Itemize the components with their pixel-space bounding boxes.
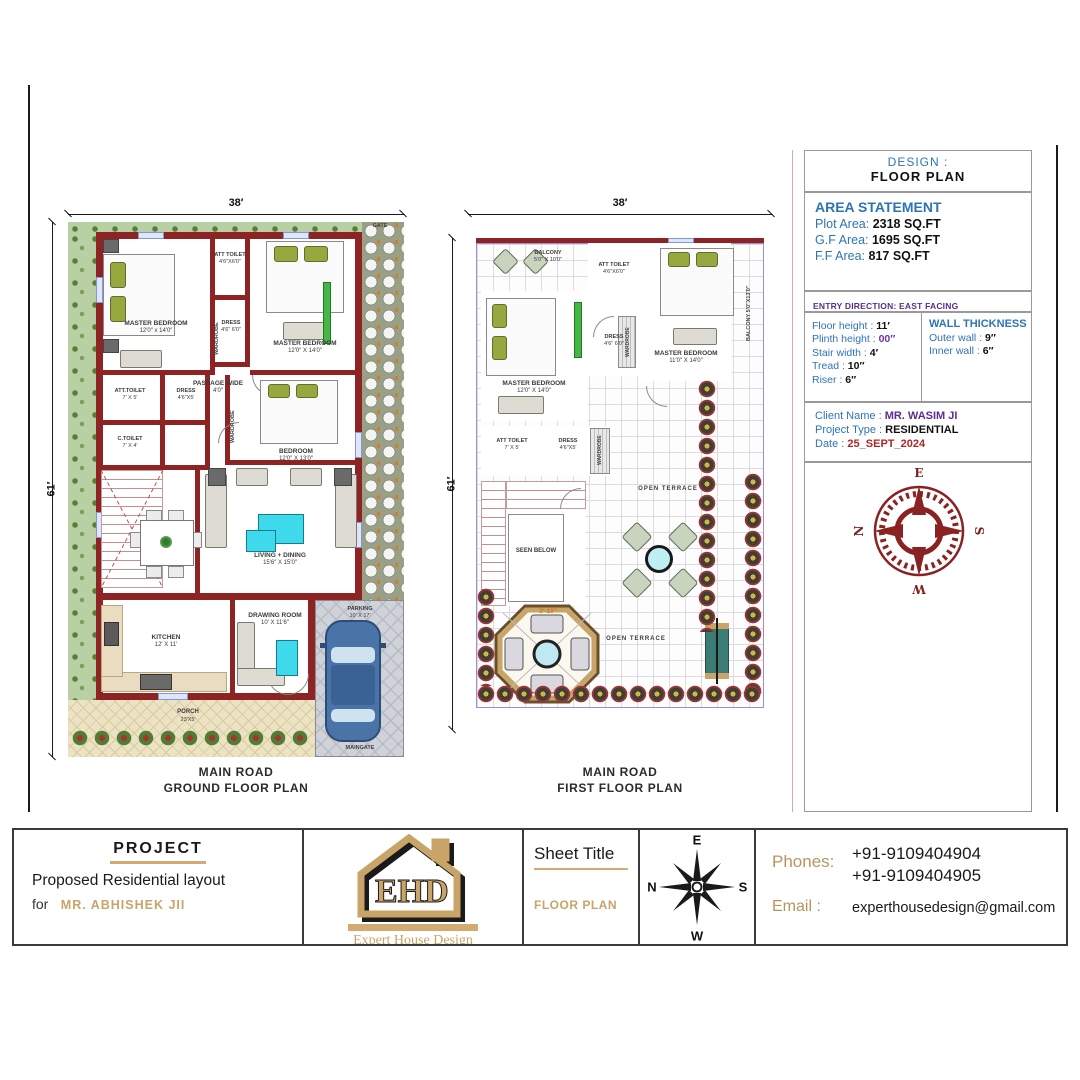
room-name: ATT TOILET <box>496 438 527 444</box>
rose-letter-bottom: W <box>912 582 925 596</box>
room-name: MASTER BEDROOM <box>273 340 336 347</box>
bed-pillow <box>274 246 298 262</box>
gf-wall-drawing-right <box>308 600 315 700</box>
gf-wall-int <box>245 232 250 367</box>
room-label-att-toilet-1: ATT TOILET 4′6″X6′0″ <box>598 262 629 276</box>
gf-hex-path-strip <box>362 222 404 600</box>
label-wardrobe: WARDROBE <box>230 405 236 449</box>
bed-pillow <box>492 336 507 360</box>
drawing-table <box>276 640 298 676</box>
spec-value: 11′ <box>876 320 890 332</box>
room-label-bedroom: BEDROOM 12′0″ X 13′0″ <box>279 448 313 464</box>
gf-wall-int <box>96 370 215 375</box>
room-label-parking: PARKING 10′ X 17′ <box>348 606 373 620</box>
bed-pillow <box>296 384 318 398</box>
bed-pillow <box>668 252 690 267</box>
gf-title-plan-name: GROUND FLOOR PLAN <box>164 780 309 796</box>
room-name: DRESS <box>222 320 241 326</box>
room-size: 12′0″ X 13′0″ <box>279 456 313 464</box>
area-value: 2318 SQ.FT <box>873 217 941 231</box>
spec-plinth-height: Plinth height : 00″ <box>812 333 895 345</box>
specs-box: Floor height : 11′ Plinth height : 00″ S… <box>804 312 1032 402</box>
logo-company-name: Expert House Design <box>353 933 473 944</box>
spec-floor-height: Floor height : 11′ <box>812 320 895 332</box>
bedside-table <box>103 339 119 353</box>
design-box: DESIGN : FLOOR PLAN <box>804 150 1032 192</box>
room-label-c-toilet: C.TOILET 7′ X 4′ <box>118 436 143 450</box>
room-name: SEEN BELOW <box>516 548 556 554</box>
compass-cell: E S W N <box>640 830 754 944</box>
project-heading: PROJECT <box>14 840 302 858</box>
room-size: 12′ X 11′ <box>152 642 181 650</box>
label-seen-below: SEEN BELOW <box>516 548 556 556</box>
room-size: 4′6″X6′0″ <box>598 269 629 276</box>
compass-letter-left: N <box>647 880 656 895</box>
client-value: 25_SEPT_2024 <box>847 438 925 450</box>
date-row: Date : 25_SEPT_2024 <box>815 438 1021 450</box>
email-label: Email : <box>772 898 821 916</box>
bed-pillow <box>110 262 126 288</box>
gf-wall-mid <box>96 593 362 600</box>
room-label-att-toilet-2: ATT TOILET 7′ X 5′ <box>496 438 527 452</box>
area-value: 1695 SQ.FT <box>872 233 940 247</box>
sliding-door-green <box>323 282 331 344</box>
spec-value: 00″ <box>879 333 896 345</box>
room-name: DRESS <box>177 388 196 394</box>
spec-label: Riser : <box>812 374 842 386</box>
room-size: 4′6″ 6′0″ <box>221 327 241 334</box>
coffee-table <box>246 530 276 552</box>
room-label-drawing-room: DRAWING ROOM 10′ X 11′6″ <box>248 612 301 628</box>
phone-number-2: +91-9109404905 <box>852 866 981 886</box>
room-name: PASSAGE WIDE <box>193 380 243 387</box>
contact-cell: Phones: +91-9109404904 +91-9109404905 Em… <box>756 830 1070 944</box>
sheet-border-right <box>1056 145 1058 812</box>
label-open-terrace-1: OPEN TERRACE <box>638 486 698 494</box>
area-label: F.F Area: <box>815 249 865 263</box>
window <box>138 232 164 239</box>
ff-dim-height-label: 61′ <box>445 477 457 492</box>
stair-dimension: 3′-10″ <box>539 608 557 615</box>
spec-outer-wall: Outer wall : 9″ <box>929 332 1027 344</box>
sheet-border-left <box>28 85 30 812</box>
room-name: BALCONY <box>534 250 561 256</box>
ff-title-plan-name: FIRST FLOOR PLAN <box>557 780 683 796</box>
spec-value: 4′ <box>870 347 878 359</box>
logo-monogram: EHD <box>375 873 449 910</box>
client-value: RESIDENTIAL <box>885 424 958 436</box>
room-name: ATT TOILET <box>598 262 629 268</box>
sofa <box>290 468 322 486</box>
room-name: ATT TOILET <box>214 252 245 258</box>
room-size: 12′0″ X 14′0″ <box>273 348 336 356</box>
room-name: PORCH <box>177 709 199 715</box>
room-label-master-bedroom-2: MASTER BEDROOM 11′0″ X 14′0″ <box>654 350 717 366</box>
client-label: Client Name : <box>815 410 882 422</box>
room-label-balcony-1: BALCONY 5′0″ X 10′0″ <box>534 250 562 264</box>
room-label-dress-1: DRESS 4′6″ 6′0″ <box>604 334 624 348</box>
room-label-att-toilet-2: ATT.TOILET 7′ X 5′ <box>115 388 146 402</box>
window <box>355 432 362 458</box>
bed-pillow <box>492 304 507 328</box>
room-size: 4′6″X5′ <box>177 395 196 402</box>
spec-label: Outer wall : <box>929 332 982 344</box>
label-wardrobe: WARDROBE <box>625 322 631 362</box>
ehd-logo: EHD <box>353 834 473 922</box>
bedside-table <box>103 239 119 253</box>
design-label: DESIGN : <box>805 155 1031 169</box>
rose-letter-right: S <box>972 527 986 536</box>
project-line2: for MR. ABHISHEK JII <box>32 896 302 914</box>
window <box>283 232 309 239</box>
room-name: ATT.TOILET <box>115 388 146 394</box>
ff-title-main-road: MAIN ROAD <box>557 764 683 780</box>
room-size: 7′ X 4′ <box>118 443 143 450</box>
planter-row <box>698 380 716 632</box>
room-size: 4′0″ <box>193 388 243 396</box>
specs-left-column: Floor height : 11′ Plinth height : 00″ S… <box>812 318 895 386</box>
room-size: 5′0″ X 10′0″ <box>534 257 562 264</box>
area-statement-title: AREA STATEMENT <box>815 199 1021 215</box>
design-value: FLOOR PLAN <box>805 169 1031 184</box>
gf-dim-width-label: 38′ <box>229 197 244 209</box>
client-label: Project Type : <box>815 424 882 436</box>
spec-tread: Tread : 10″ <box>812 360 895 372</box>
room-name: MASTER BEDROOM <box>124 320 187 327</box>
room-size: 15′6″ X 15′0″ <box>254 560 306 568</box>
room-size: 12′0″ x 14′0″ <box>124 328 187 336</box>
room-label-dress-1: DRESS 4′6″ 6′0″ <box>221 320 241 334</box>
sliding-door-green <box>574 302 582 358</box>
dining-chair <box>168 566 184 578</box>
gf-wall-int <box>215 362 250 367</box>
gf-wall-int <box>96 420 210 425</box>
label-wardrobe: WARDROBE <box>597 430 603 470</box>
label-gate: GATE <box>373 223 388 229</box>
room-name: OPEN TERRACE <box>638 486 698 492</box>
stair-void-box <box>508 514 564 602</box>
area-statement-box: AREA STATEMENT Plot Area: 2318 SQ.FT G.F… <box>804 192 1032 291</box>
room-label-master-bedroom-1: MASTER BEDROOM 12′0″ X 14′0″ <box>502 380 565 396</box>
room-name: PARKING <box>348 606 373 612</box>
spec-label: Stair width : <box>812 347 867 359</box>
title-block: PROJECT Proposed Residential layout for … <box>12 828 1068 946</box>
wall-thickness-title: WALL THICKNESS <box>929 318 1027 330</box>
compass-icon <box>657 847 737 927</box>
first-floor-plan: SEEN BELOW 3′-10″ <box>468 238 772 730</box>
spec-label: Inner wall : <box>929 345 980 357</box>
entry-direction-text: ENTRY DIRECTION: EAST FACING <box>813 301 958 311</box>
area-row-gf: G.F Area: 1695 SQ.FT <box>815 233 1021 247</box>
compass-letter-right: S <box>739 880 748 895</box>
room-label-balcony-2: BALCONY 5′0″X13′0″ <box>746 278 752 348</box>
window <box>96 277 103 303</box>
terrace-round-table <box>645 545 673 573</box>
room-label-master-bedroom-1: MASTER BEDROOM 12′0″ x 14′0″ <box>124 320 187 336</box>
ff-plan-title: MAIN ROAD FIRST FLOOR PLAN <box>557 764 683 796</box>
compass-rose-decorative <box>871 483 967 579</box>
phones-label: Phones: <box>772 852 834 872</box>
loveseat <box>673 328 717 345</box>
bed-pillow <box>268 384 290 398</box>
entry-direction-box: ENTRY DIRECTION: EAST FACING <box>804 291 1032 312</box>
spec-label: Floor height : <box>812 320 873 332</box>
bed-pillow <box>696 252 718 267</box>
spec-inner-wall: Inner wall : 6″ <box>929 345 1027 357</box>
loveseat <box>120 350 162 368</box>
room-name: MASTER BEDROOM <box>654 350 717 357</box>
drawing-sheet: 38′ 61′ <box>0 0 1080 1080</box>
room-size: 10′ X 17′ <box>348 613 373 620</box>
sofa <box>236 468 268 486</box>
sheet-title-value: FLOOR PLAN <box>534 898 638 912</box>
room-name: KITCHEN <box>152 634 181 641</box>
room-size: 4′6″X6′0″ <box>214 259 245 266</box>
logo-bar <box>348 924 478 931</box>
room-name: DRAWING ROOM <box>248 612 301 619</box>
room-name: DRESS <box>559 438 578 444</box>
rose-letter-left: N <box>852 526 866 537</box>
ff-dim-width-label: 38′ <box>613 197 628 209</box>
panel-divider-line <box>792 150 793 812</box>
stove <box>140 674 172 690</box>
project-for-text: for <box>32 896 48 912</box>
client-value: MR. WASIM JI <box>885 410 958 422</box>
room-name: OPEN TERRACE <box>606 636 666 642</box>
room-label-living-dining: LIVING + DINING 15′6″ X 15′0″ <box>254 552 306 568</box>
gf-garden-strip-top <box>68 222 362 232</box>
spec-riser: Riser : 6″ <box>812 374 895 386</box>
area-row-ff: F.F Area: 817 SQ.FT <box>815 249 1021 263</box>
room-name: C.TOILET <box>118 436 143 442</box>
spec-label: Plinth height : <box>812 333 876 345</box>
gf-wall-int <box>215 295 245 300</box>
room-label-passage: PASSAGE WIDE 4′0″ <box>193 380 243 396</box>
project-heading-underline <box>110 861 206 864</box>
planter-row <box>744 473 762 701</box>
gf-porch-flower-bed <box>70 728 313 752</box>
bed-pillow <box>304 246 328 262</box>
room-size: 10′ X 11′6″ <box>248 620 301 628</box>
specs-divider <box>921 313 922 403</box>
area-label: Plot Area: <box>815 217 869 231</box>
logo-cell: EHD Expert House Design <box>304 830 522 944</box>
gf-dim-line-top <box>68 214 404 215</box>
sheet-title-heading: Sheet Title <box>534 844 638 864</box>
table-plant <box>160 536 172 548</box>
area-row-plot: Plot Area: 2318 SQ.FT <box>815 217 1021 231</box>
bench-axis-line <box>716 618 718 684</box>
spec-value: 6″ <box>845 374 856 386</box>
sheet-title-underline <box>534 868 628 870</box>
compass-letter-top: E <box>693 833 702 848</box>
project-cell: PROJECT Proposed Residential layout for … <box>14 830 302 944</box>
room-size: 11′0″ X 14′0″ <box>654 358 717 366</box>
room-size: 7′ X 5′ <box>496 445 527 452</box>
room-size: 7′ X 5′ <box>115 395 146 402</box>
gf-garden-strip-left <box>68 232 96 700</box>
room-size: 4′6″ 6′0″ <box>604 341 624 348</box>
planter-row <box>477 588 495 686</box>
window <box>158 693 188 700</box>
room-label-att-toilet-1: ATT TOILET 4′6″X6′0″ <box>214 252 245 266</box>
area-label: G.F Area: <box>815 233 869 247</box>
label-maingate: MAINGATE <box>346 745 375 751</box>
room-label-master-bedroom-2: MASTER BEDROOM 12′0″ X 14′0″ <box>273 340 336 356</box>
planter-row <box>477 685 762 703</box>
gf-plan-title: MAIN ROAD GROUND FLOOR PLAN <box>164 764 309 796</box>
client-name-row: Client Name : MR. WASIM JI <box>815 410 1021 422</box>
label-open-terrace-2: OPEN TERRACE <box>606 636 666 644</box>
compass-rose-box: E S W N <box>804 462 1032 812</box>
gf-wall-top <box>96 232 362 239</box>
room-size: 23′X5′ <box>177 717 199 724</box>
ff-dim-line-top <box>468 214 772 215</box>
kitchen-sink <box>104 622 119 646</box>
room-name: LIVING + DINING <box>254 552 306 559</box>
label-wardrobe: WARDROBE <box>214 317 220 361</box>
room-label-dress-2: DRESS 4′6″X5′ <box>559 438 578 452</box>
ground-floor-plan: MASTER BEDROOM 12′0″ x 14′0″ ATT TOILET … <box>68 222 404 757</box>
room-size: 4′6″X5′ <box>559 445 578 452</box>
gf-dim-height-label: 61′ <box>45 482 57 497</box>
spec-label: Tread : <box>812 360 845 372</box>
room-name: MASTER BEDROOM <box>502 380 565 387</box>
project-line1: Proposed Residential layout <box>32 872 302 890</box>
room-name: DRESS <box>605 334 624 340</box>
rose-letter-top: E <box>914 466 923 480</box>
room-label-kitchen: KITCHEN 12′ X 11′ <box>152 634 181 650</box>
loveseat <box>498 396 544 414</box>
area-value: 817 SQ.FT <box>869 249 930 263</box>
corner-table <box>208 468 226 486</box>
car-top-view <box>320 617 386 745</box>
room-size: 12′0″ X 14′0″ <box>502 388 565 396</box>
email-value: experthousedesign@gmail.com <box>852 900 1055 916</box>
room-name: BEDROOM <box>279 448 313 455</box>
client-label: Date : <box>815 438 844 450</box>
spec-stair-width: Stair width : 4′ <box>812 347 895 359</box>
phone-number-1: +91-9109404904 <box>852 844 981 864</box>
gf-wall-int <box>230 600 235 693</box>
wall-thickness-column: WALL THICKNESS Outer wall : 9″ Inner wal… <box>929 318 1027 357</box>
sheet-title-cell: Sheet Title FLOOR PLAN <box>524 830 638 944</box>
spec-value: 10″ <box>848 360 865 372</box>
entrance-door-arc <box>288 674 309 695</box>
room-label-porch: PORCH 23′X5′ <box>177 709 199 724</box>
project-type-row: Project Type : RESIDENTIAL <box>815 424 1021 436</box>
dining-chair <box>146 566 162 578</box>
corner-table <box>334 468 352 486</box>
spec-value: 6″ <box>983 345 994 357</box>
client-box: Client Name : MR. WASIM JI Project Type … <box>804 402 1032 462</box>
gf-title-main-road: MAIN ROAD <box>164 764 309 780</box>
bed-pillow <box>110 296 126 322</box>
spec-value: 9″ <box>985 332 996 344</box>
compass-letter-bottom: W <box>691 929 703 944</box>
project-client-name: MR. ABHISHEK JII <box>61 898 186 912</box>
room-label-dress-2: DRESS 4′6″X5′ <box>177 388 196 402</box>
